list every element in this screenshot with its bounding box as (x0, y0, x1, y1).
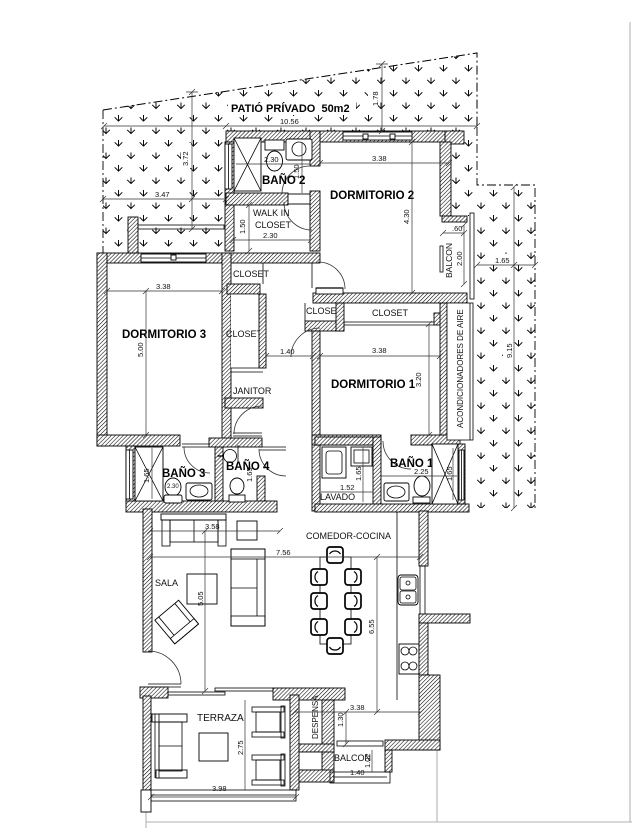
svg-text:.60: .60 (452, 224, 462, 233)
svg-text:DORMITORIO 1: DORMITORIO 1 (331, 379, 416, 391)
svg-text:JANITOR: JANITOR (233, 386, 272, 396)
svg-text:2.25: 2.25 (414, 467, 429, 476)
svg-text:SALA: SALA (155, 578, 178, 588)
svg-text:2.00: 2.00 (455, 251, 464, 266)
svg-text:5.00: 5.00 (136, 342, 145, 357)
svg-text:COMEDOR-COCINA: COMEDOR-COCINA (306, 531, 391, 541)
svg-text:1.65: 1.65 (245, 467, 254, 482)
svg-text:5.05: 5.05 (196, 591, 205, 606)
svg-text:2.30: 2.30 (263, 231, 278, 240)
svg-text:ACONDICIONADORES DE AIRE: ACONDICIONADORES DE AIRE (456, 309, 465, 428)
svg-text:3.38: 3.38 (372, 346, 387, 355)
svg-text:BAÑO 3: BAÑO 3 (162, 467, 205, 480)
svg-text:2.30: 2.30 (167, 484, 179, 490)
svg-text:3.72: 3.72 (181, 151, 190, 166)
svg-text:10.56: 10.56 (280, 117, 299, 126)
svg-text:1.50: 1.50 (292, 164, 301, 179)
svg-text:TERRAZA: TERRAZA (197, 713, 244, 724)
svg-text:6.55: 6.55 (367, 619, 376, 634)
svg-text:LAVADO: LAVADO (320, 492, 355, 502)
svg-text:WALK IN: WALK IN (253, 208, 290, 218)
svg-text:CLOSET: CLOSET (372, 308, 409, 318)
svg-text:BALCON: BALCON (444, 243, 454, 278)
svg-text:1.02: 1.02 (363, 753, 372, 768)
svg-text:1.40: 1.40 (350, 768, 365, 777)
svg-text:3.47: 3.47 (155, 190, 170, 199)
svg-text:DORMITORIO 3: DORMITORIO 3 (122, 329, 206, 341)
svg-text:1.65: 1.65 (142, 468, 151, 483)
svg-text:1.65: 1.65 (445, 466, 454, 481)
svg-text:3.38: 3.38 (372, 154, 387, 163)
svg-text:2.30: 2.30 (264, 155, 279, 164)
svg-text:3.20: 3.20 (414, 372, 423, 387)
svg-text:PATIÓ PRÍVADO 50m2: PATIÓ PRÍVADO 50m2 (231, 102, 350, 115)
svg-text:3.38: 3.38 (156, 282, 171, 291)
svg-text:DESPENSA: DESPENSA (311, 695, 320, 739)
svg-text:1.30: 1.30 (336, 712, 345, 727)
svg-text:1.65: 1.65 (495, 256, 510, 265)
svg-text:4.30: 4.30 (402, 209, 411, 224)
svg-text:1.50: 1.50 (238, 219, 247, 234)
svg-text:2.75: 2.75 (236, 740, 245, 755)
svg-text:3.38: 3.38 (350, 703, 365, 712)
svg-text:CLOSET: CLOSET (233, 269, 270, 279)
svg-text:7.56: 7.56 (276, 548, 291, 557)
svg-text:3.58: 3.58 (205, 522, 220, 531)
svg-text:DORMITORIO 2: DORMITORIO 2 (330, 190, 414, 202)
svg-text:1.65: 1.65 (354, 466, 363, 481)
svg-text:1.52: 1.52 (340, 483, 355, 492)
svg-text:1.40: 1.40 (280, 347, 295, 356)
svg-text:CLOSET: CLOSET (226, 329, 263, 339)
svg-text:9.15: 9.15 (505, 343, 514, 358)
svg-text:1.78: 1.78 (371, 91, 380, 106)
svg-text:3.98: 3.98 (212, 784, 227, 793)
svg-text:CLOSET: CLOSET (255, 220, 292, 230)
